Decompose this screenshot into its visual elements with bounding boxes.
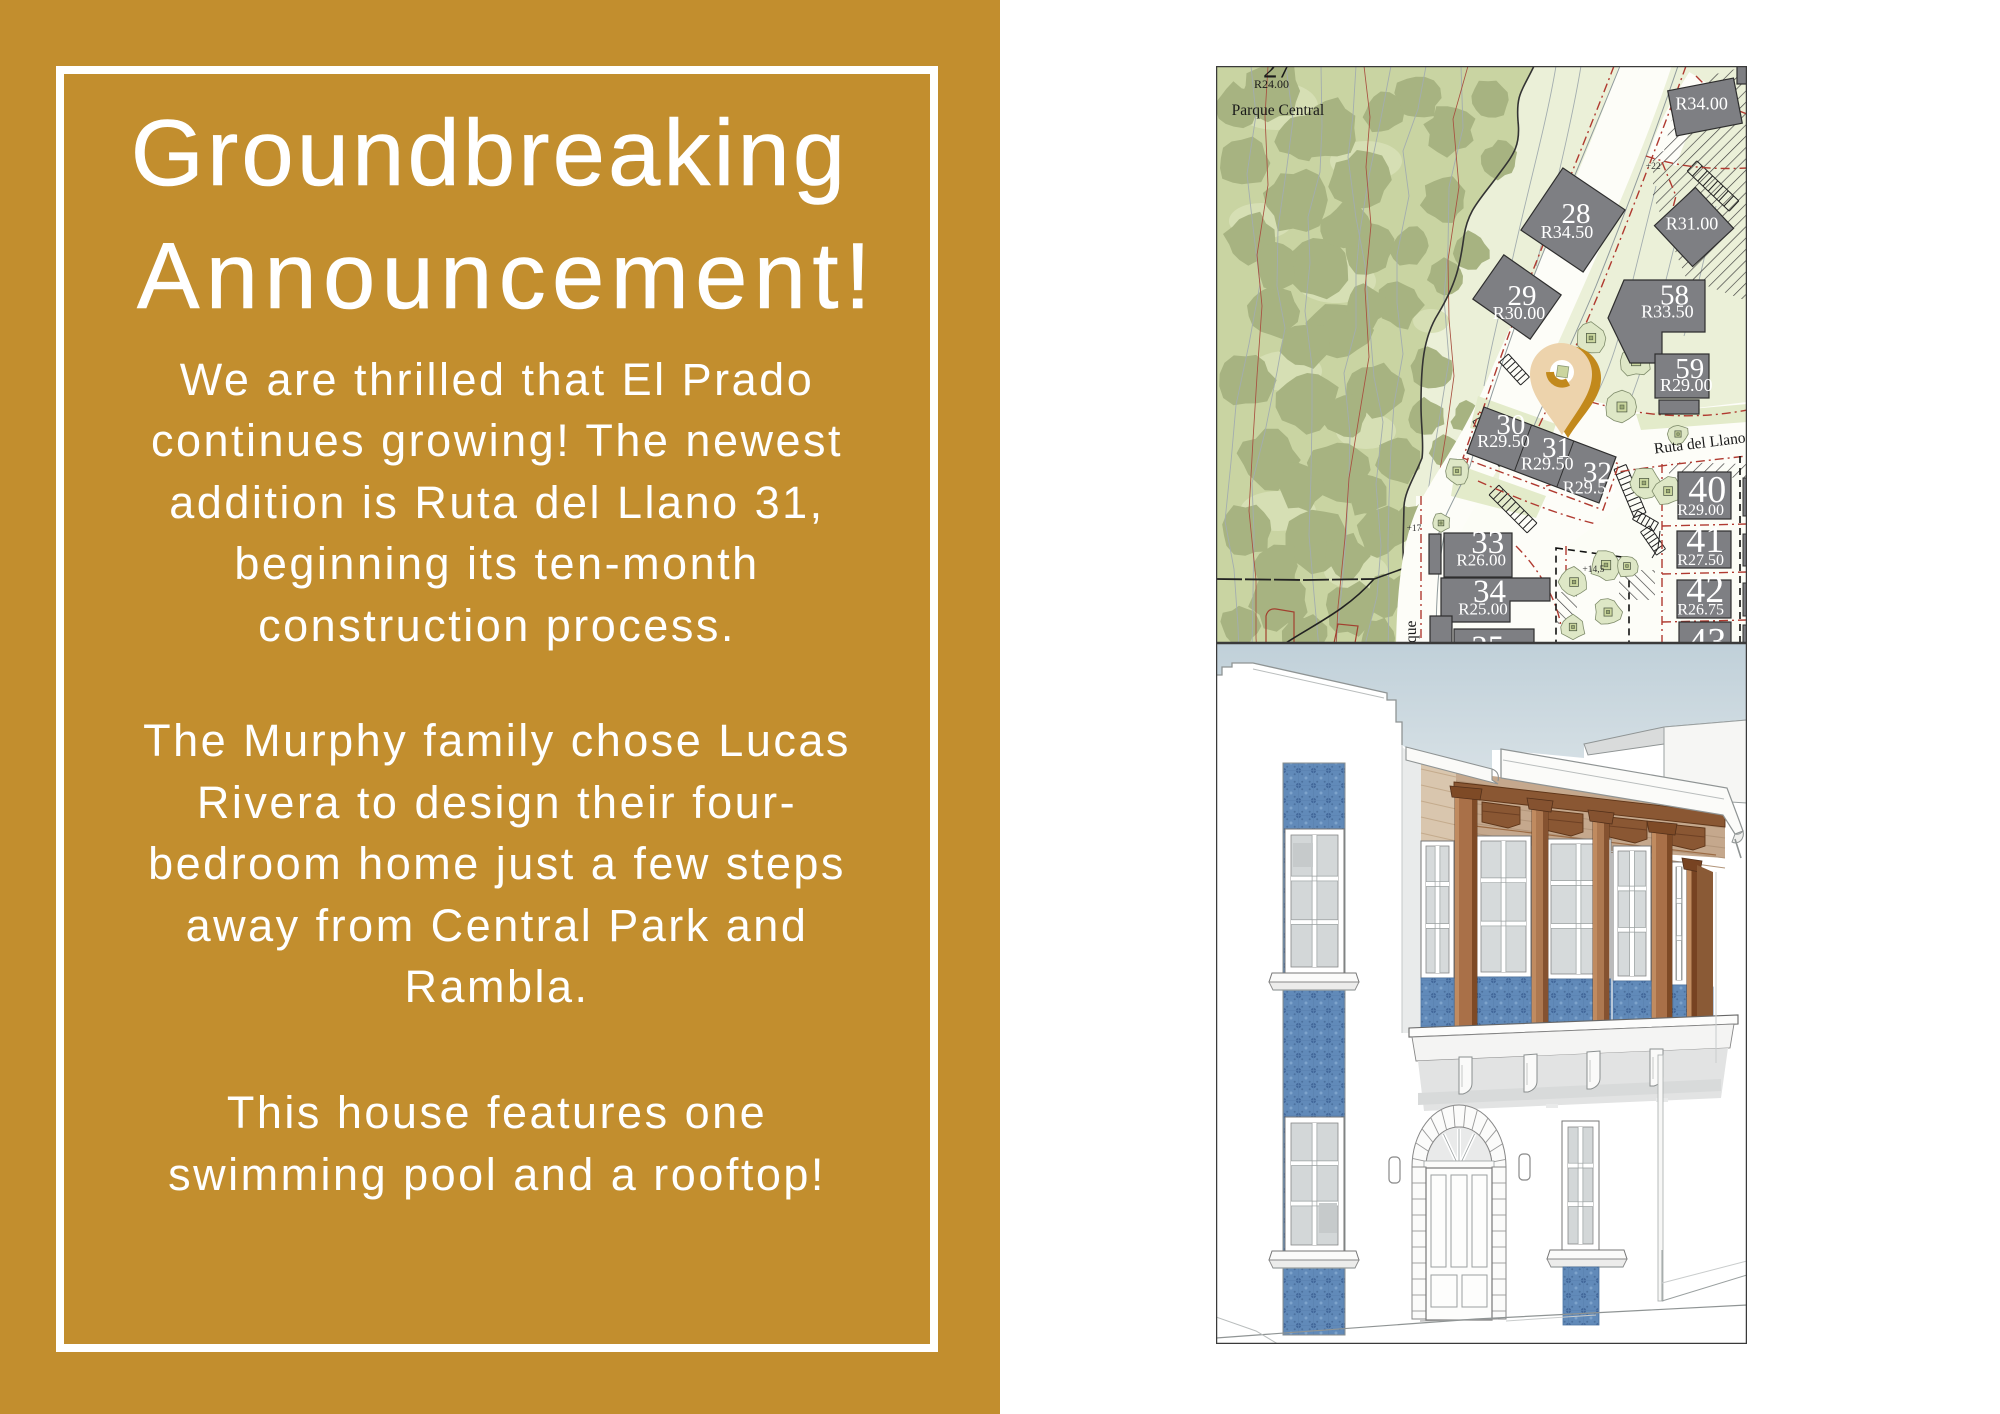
svg-text:que: que xyxy=(1403,621,1420,644)
svg-text:R27.50: R27.50 xyxy=(1677,552,1724,569)
svg-text:R25.00: R25.00 xyxy=(1458,600,1508,619)
svg-text:R24.00: R24.00 xyxy=(1254,77,1289,91)
svg-text:R34.50: R34.50 xyxy=(1541,222,1594,242)
svg-text:+17: +17 xyxy=(1407,524,1422,534)
svg-text:Parque Central: Parque Central xyxy=(1232,102,1325,119)
svg-text:35: 35 xyxy=(1471,630,1504,643)
svg-text:+22: +22 xyxy=(1646,162,1661,172)
svg-text:R29.50: R29.50 xyxy=(1563,478,1616,498)
svg-text:R29.50: R29.50 xyxy=(1521,453,1574,473)
svg-text:R29.50: R29.50 xyxy=(1477,431,1530,451)
svg-text:R26.00: R26.00 xyxy=(1456,551,1506,570)
svg-text:R29.00: R29.00 xyxy=(1677,502,1724,519)
svg-text:43: 43 xyxy=(1688,621,1726,643)
svg-text:R26.75: R26.75 xyxy=(1677,602,1724,619)
svg-text:R29.00: R29.00 xyxy=(1660,375,1713,395)
svg-text:R30.00: R30.00 xyxy=(1493,303,1546,323)
svg-text:+14,5: +14,5 xyxy=(1582,565,1604,575)
svg-text:R34.00: R34.00 xyxy=(1675,94,1728,114)
svg-text:R33.50: R33.50 xyxy=(1641,302,1694,322)
svg-text:R31.00: R31.00 xyxy=(1666,213,1719,233)
